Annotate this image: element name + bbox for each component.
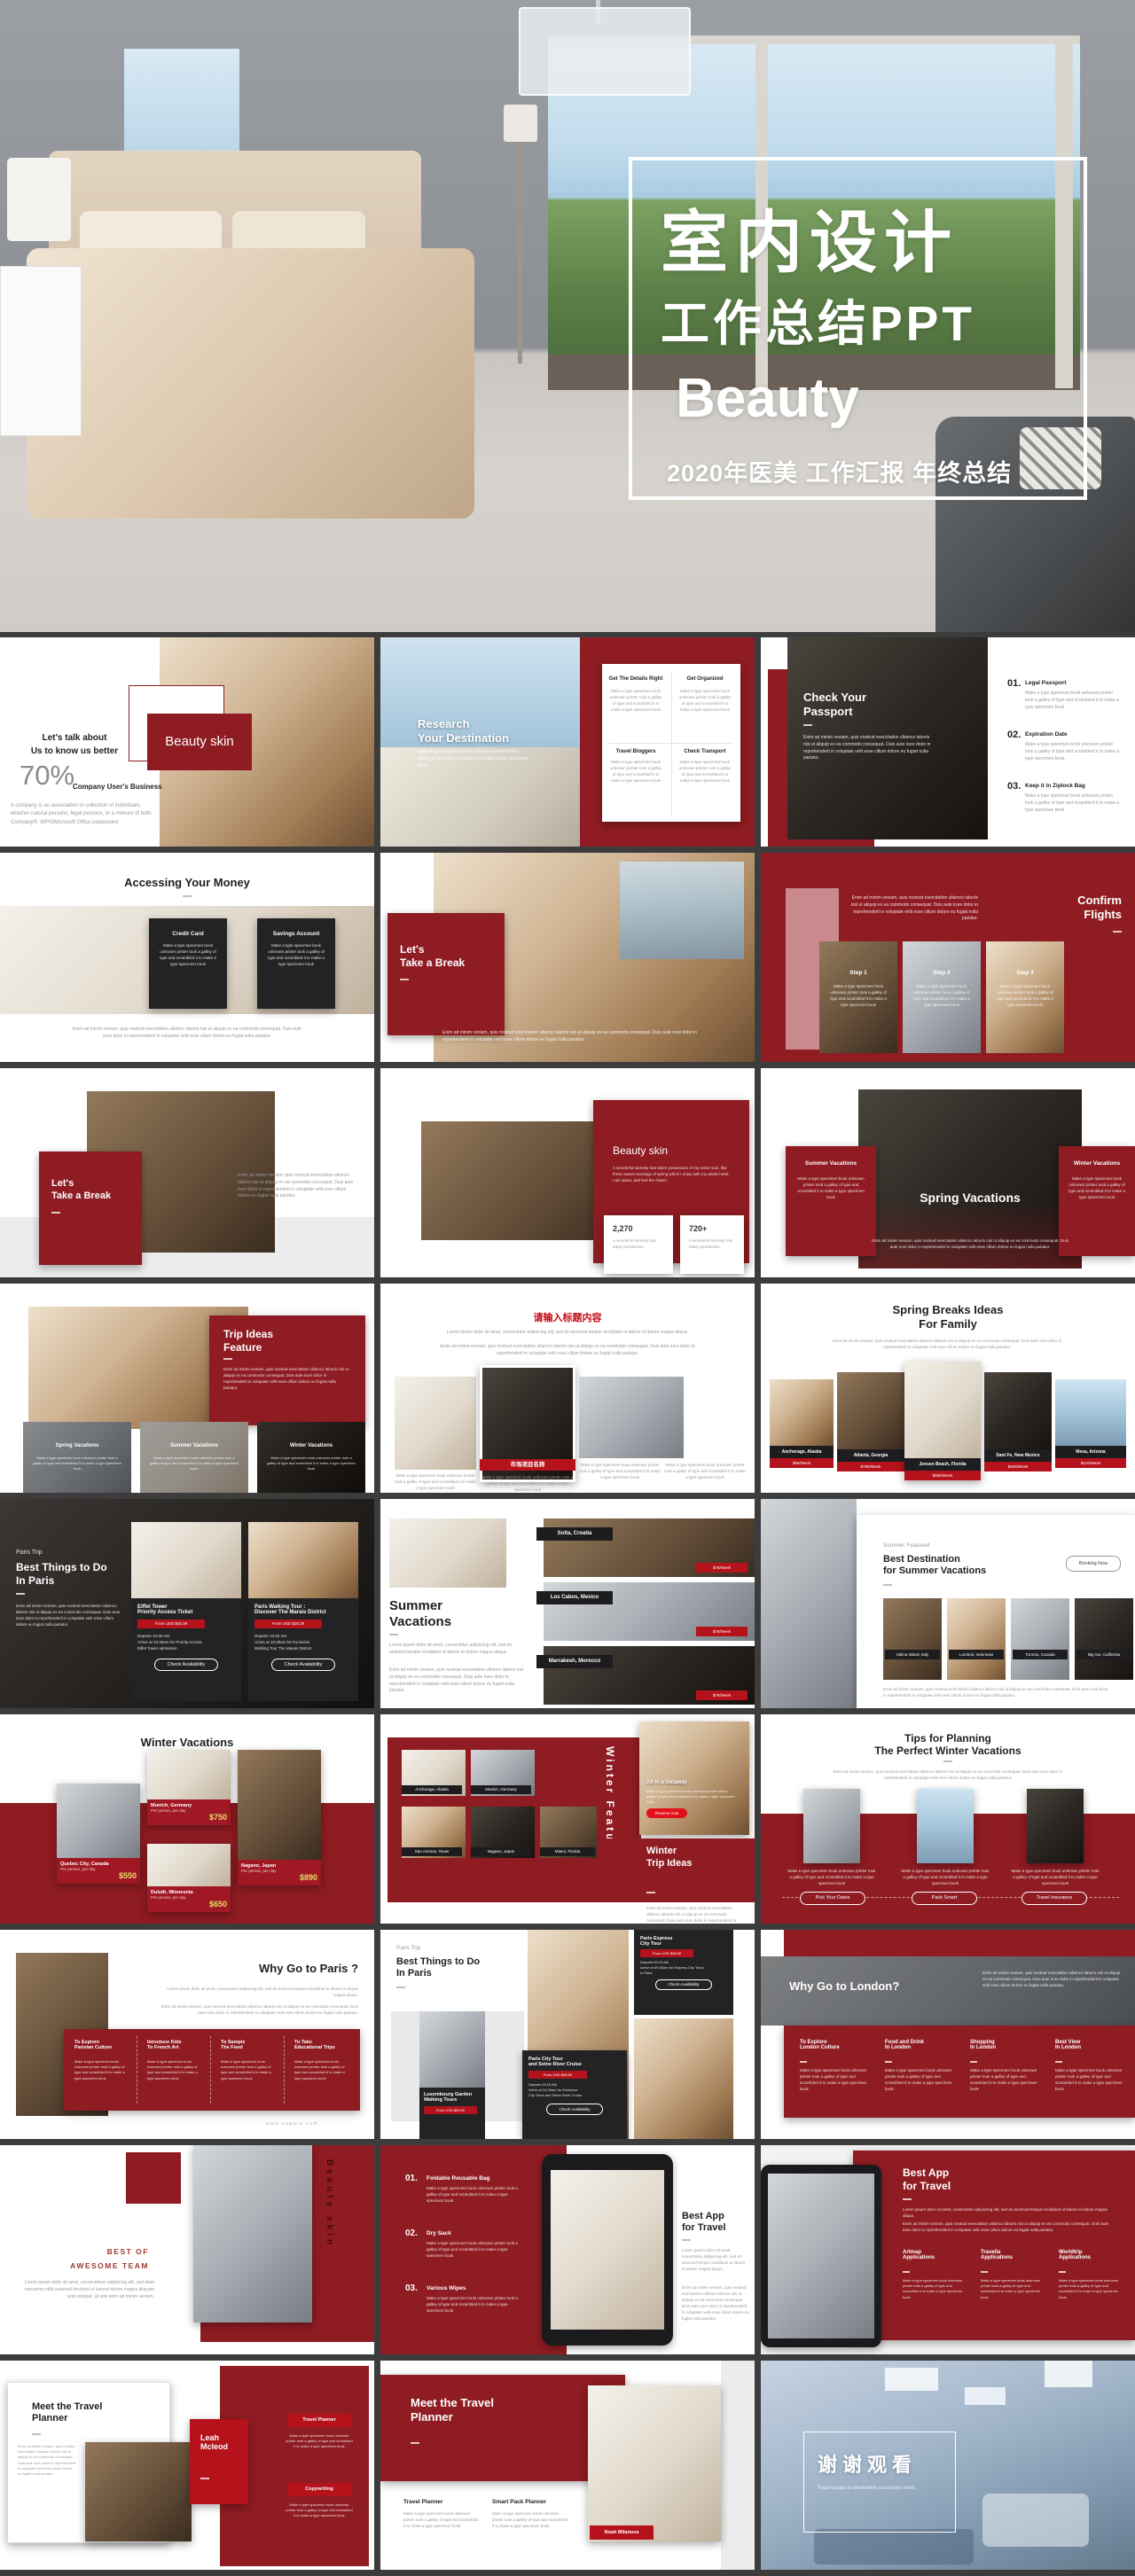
s17-title: Winter Trip Ideas xyxy=(646,1846,692,1870)
s1-stat-label: Company User's Business xyxy=(73,783,162,791)
divider xyxy=(411,2442,419,2444)
s20-card-1-title: Luxembourg Garden Walking Tours xyxy=(424,2092,481,2103)
s17-label-4: Nagano, Japan xyxy=(471,1847,531,1856)
s9-right-body: Make a type specimen book unknown printe… xyxy=(1066,1176,1128,1201)
s9-left-body: Make a type specimen book unknown printe… xyxy=(794,1176,867,1201)
s6-step-2: Step 2 xyxy=(903,970,981,976)
s20-card-1-price: From USD $69.59 xyxy=(424,2106,477,2114)
s21-col-3: Shopping In London xyxy=(970,2040,996,2050)
s21-col-1-body: Make a type specimen book unknown printe… xyxy=(800,2068,867,2093)
travel-insurance-button: Travel Insurance xyxy=(1021,1892,1087,1905)
slide-thumb-17[interactable]: Winter Feature Anchorage, Alaska Munich,… xyxy=(380,1714,755,1924)
s14-price-1: $78/Week xyxy=(696,1563,748,1573)
slide-thumb-1[interactable]: Beauty skin Let's talk about Us to know … xyxy=(0,637,374,847)
s4-title: Accessing Your Money xyxy=(0,876,374,890)
s16-price-3: $650 xyxy=(151,1900,227,1909)
s25-title: Meet the Travel Planner xyxy=(32,2401,102,2424)
fireplace-photo xyxy=(389,1518,506,1588)
s9-left-label: Summer Vacations xyxy=(786,1160,876,1167)
divider xyxy=(970,2061,977,2063)
s18-body: Enim ad minim veniam, quis nostrud exerc… xyxy=(828,1769,1068,1784)
s23-num-2: 02. xyxy=(405,2229,418,2238)
person-card xyxy=(190,2419,248,2504)
tour-card: Eiffel Tower Priority Access TicketFrom … xyxy=(131,1522,241,1701)
s16-price-2: $550 xyxy=(60,1871,137,1880)
hero-title-en: Beauty xyxy=(676,367,859,430)
slide-thumb-20[interactable]: Paris Trip Best Things to Do In Paris Lu… xyxy=(380,1930,755,2139)
tablet-screen-photo xyxy=(551,2170,664,2330)
s26-tag: Noah Milanova xyxy=(590,2525,654,2540)
s17-feature-title: All In a Getaway xyxy=(646,1780,687,1785)
divider xyxy=(396,1987,405,1988)
s15-card-3: Toronto, Canada xyxy=(1013,1650,1068,1659)
s18-text-1: Make a type specimen book unknown printe… xyxy=(787,1869,876,1887)
s14-city-1: Solta, Croatia xyxy=(536,1527,613,1541)
atrium-photo xyxy=(761,1499,857,1708)
s24-col-2: Travelia Applications xyxy=(981,2250,1013,2260)
s21-col-1: To Explore London Culture xyxy=(800,2040,840,2050)
s19-col-3-body: Make a type specimen book unknown printe… xyxy=(221,2059,276,2081)
s12-price-2: $795/Week xyxy=(837,1462,904,1471)
slide-thumb-4[interactable]: Accessing Your Money Credit Card Make a … xyxy=(0,853,374,1062)
tablet-screen-photo xyxy=(768,2174,874,2338)
s8-stat-2: 720+ xyxy=(689,1224,707,1233)
slide-thumb-11[interactable]: 请输入标题内容 Lorem ipsum dolor sit amet, cons… xyxy=(380,1284,755,1493)
s9-right-label: Winter Vacations xyxy=(1059,1160,1135,1167)
s6-step-3: Step 3 xyxy=(986,970,1064,976)
price-card-munich: Munich, GermanyPer person, per day$750 xyxy=(147,1750,231,1825)
s13-card-1-title: Eiffel Tower Priority Access Ticket xyxy=(137,1604,235,1615)
tip-photo-3 xyxy=(1027,1789,1084,1863)
s12-title: Spring Breaks Ideas For Family xyxy=(761,1303,1135,1331)
s21-body: Enim ad minim veniam, quis nostrud exerc… xyxy=(982,1971,1124,1989)
s20-card-3-price: From USD $38.59 xyxy=(640,1949,693,1957)
s23-item-2: Dry Sack xyxy=(427,2230,451,2236)
reserve-now-button: Reserve now xyxy=(646,1808,687,1818)
s26-col-1: Travel Planner xyxy=(403,2499,442,2505)
s18-title: Tips for Planning The Perfect Winter Vac… xyxy=(761,1732,1135,1758)
s9-footer: Enim ad minim veniam, quis nostrud exerc… xyxy=(867,1238,1073,1251)
s19-col-3: To Sample The Food xyxy=(221,2040,245,2050)
s11-col-2: Make a type specimen book unknown printe… xyxy=(480,1475,575,1493)
white-bedroom-photo xyxy=(579,1377,684,1458)
s22-title: BEST OF AWESOME TEAM xyxy=(32,2244,149,2273)
s3-body: Enim ad minim veniam, quis nostrud exerc… xyxy=(803,735,936,762)
s10-card-3-body: Make a type specimen book unknown printe… xyxy=(266,1456,356,1472)
s24-body-1: Lorem ipsum dolor sit amet, consectetur … xyxy=(903,2207,1115,2220)
s14-price-3: $78/Week xyxy=(696,1690,748,1700)
s6-step-1: Step 1 xyxy=(819,970,897,976)
s4-card-2: Savings Account xyxy=(257,931,335,937)
slide-thumb-2[interactable]: Research Your Destination Make a type sp… xyxy=(380,637,755,847)
red-top-bar xyxy=(784,1930,1135,1956)
s23-item-3-body: Make a type specimen book unknown printe… xyxy=(427,2296,526,2314)
s3-item-1-body: Make a type specimen book unknown printe… xyxy=(1025,691,1121,711)
s24-title: Best App for Travel xyxy=(903,2166,951,2193)
s8-stat-1: 2,270 xyxy=(613,1224,633,1233)
city-card: Atlanta, Georgia$795/Week xyxy=(837,1372,904,1471)
s13-card-2-price: From USD $28.39 xyxy=(254,1620,322,1628)
divider xyxy=(943,1760,952,1762)
s12-price-5: $116/Week xyxy=(1055,1458,1126,1468)
s14-body-1: Lorem ipsum dolor sit amet, consectetur … xyxy=(389,1643,524,1657)
dest-photo-4 xyxy=(1075,1598,1133,1680)
s19-col-4-body: Make a type specimen book unknown printe… xyxy=(294,2059,349,2081)
dest-photo-1 xyxy=(883,1598,942,1680)
s2-card-1-body: Make a type specimen book unknown printe… xyxy=(609,689,662,714)
s17-label-2: Munich, Germany xyxy=(471,1785,531,1794)
loft-photo xyxy=(193,2145,312,2322)
s21-col-4-body: Make a type specimen book unknown printe… xyxy=(1055,2068,1123,2093)
s22-body: Lorem ipsum dolor sit amet, consectetuer… xyxy=(21,2280,154,2300)
s5-footer: Enim ad minim veniam, quis nostrud exerc… xyxy=(442,1030,700,1044)
slide-thumb-26[interactable]: Meet the Travel Planner Travel Planner M… xyxy=(380,2361,755,2570)
slide-thumb-14[interactable]: Summer Vacations Lorem ipsum dolor sit a… xyxy=(380,1499,755,1708)
s25-body: Enim ad minim veniam, quis nostrud exerc… xyxy=(18,2444,76,2477)
s6-step-1-body: Make a type specimen book unknown printe… xyxy=(826,984,890,1009)
slide-thumb-22[interactable]: Beauty skin BEST OF AWESOME TEAM Lorem i… xyxy=(0,2145,374,2354)
s24-col-1: Artmap Applications xyxy=(903,2250,935,2260)
slide-thumb-9[interactable]: Spring Vacations Summer Vacations Make a… xyxy=(761,1068,1135,1277)
slide-thumb-8[interactable]: Beauty skin A wonderful serenity has tak… xyxy=(380,1068,755,1277)
s3-item-3: Keep it in Ziplock Bag xyxy=(1025,783,1085,789)
divider xyxy=(1059,2271,1066,2273)
slide-thumb-15[interactable]: Summer Featured Best Destination for Sum… xyxy=(761,1499,1135,1708)
price-card-nagano: Nagano, JapanPer person, per day$890 xyxy=(238,1750,321,1885)
s17-label-5: Miami, Florida xyxy=(540,1847,595,1856)
s23-num-3: 03. xyxy=(405,2283,418,2293)
pick-dates-button: Pick Your Dates xyxy=(800,1892,865,1905)
pack-smart-button: Pack Smart xyxy=(912,1892,977,1905)
hero-cover: 室内设计 工作总结PPT Beauty 2020年医美 工作汇报 年终总结 xyxy=(0,0,1135,632)
s26-col-2-body: Make a type specimen book unknown printe… xyxy=(492,2511,570,2530)
tip-photo-1 xyxy=(803,1789,860,1863)
s2-card-1: Get The Details Right xyxy=(607,676,664,682)
s10-card-1-body: Make a type specimen book unknown printe… xyxy=(32,1456,122,1472)
s19-col-4: To Take Educational Trips xyxy=(294,2040,335,2050)
s24-col-1-body: Make a type specimen book unknown printe… xyxy=(903,2278,967,2300)
check-availability-button: Check Availability xyxy=(655,1979,712,1990)
s2-caption: Make a type specimen book unknown printe… xyxy=(418,749,531,769)
s13-title: Best Things to Do In Paris xyxy=(16,1561,107,1588)
s23-item-3: Various Wipes xyxy=(427,2285,466,2291)
s3-title: Check Your Passport xyxy=(803,691,866,720)
city-card: Jensen Beach, Florida$856/Week xyxy=(904,1362,981,1480)
s25-badge-1-body: Make a type specimen book unknown printe… xyxy=(286,2433,353,2450)
slide-thumb-3[interactable]: Check Your Passport Enim ad minim veniam… xyxy=(761,637,1135,847)
s2-card-2-body: Make a type specimen book unknown printe… xyxy=(678,689,732,714)
check-availability-button: Check Availability xyxy=(271,1659,335,1671)
s2-title: Research Your Destination xyxy=(418,717,509,746)
s8-stat-1-label: A wonderful serenity has taken possessio… xyxy=(613,1238,664,1251)
s19-col-2-body: Make a type specimen book unknown printe… xyxy=(147,2059,202,2081)
red-panel xyxy=(853,2151,1135,2340)
slide-thumb-10[interactable]: Trip Ideas Feature Enim ad minim veniam,… xyxy=(0,1284,374,1493)
s20-card-2-details: Departs 09:15 AM Arrive at 09:30am for E… xyxy=(528,2082,621,2099)
s19-col-1-body: Make a type specimen book unknown printe… xyxy=(74,2059,129,2081)
s23-num-1: 01. xyxy=(405,2174,418,2183)
s1-stat: 70% xyxy=(20,760,74,792)
s6-step-3-body: Make a type specimen book unknown printe… xyxy=(993,984,1057,1009)
s10-card-2-body: Make a type specimen book unknown printe… xyxy=(149,1456,239,1472)
s13-kicker: Paris Trip xyxy=(16,1549,43,1558)
s20-card-3-details: Departs 09:15 AM Arrive at 09:30am for E… xyxy=(640,1960,727,1977)
copywriting-badge: Copywriting xyxy=(287,2483,351,2496)
s14-price-2: $78/Week xyxy=(696,1627,748,1636)
slide-thumb-5[interactable]: Let's Take a Break Enim ad minim veniam,… xyxy=(380,853,755,1062)
luxembourg-photo xyxy=(419,2011,485,2088)
s15-card-2: Lombok, Indonesia xyxy=(949,1650,1004,1659)
s15-card-1: Salina Island, Italy xyxy=(885,1650,940,1659)
sofa-photo xyxy=(634,2018,733,2139)
s17-footer-body: Enim ad minim veniam, quis nostrud exerc… xyxy=(646,1906,746,1922)
s15-footer: Enim ad minim veniam, quis nostrud exerc… xyxy=(883,1687,1110,1703)
red-title-box xyxy=(387,913,505,1035)
s9-title: Spring Vacations xyxy=(858,1190,1082,1206)
divider xyxy=(1113,931,1122,933)
s13-card-1-price: From USD $48.39 xyxy=(137,1620,205,1628)
city-card: Sant Fe, New Mexico$805/Week xyxy=(984,1372,1052,1471)
s23-item-1-body: Make a type specimen book unknown printe… xyxy=(427,2186,526,2205)
s11-tag: 市场项目名称 xyxy=(480,1459,575,1471)
s23-body-1: Lorem ipsum dolor sit amet, consectetur … xyxy=(682,2248,749,2273)
s2-card-3: Travel Bloggers xyxy=(607,749,664,754)
dest-photo-3 xyxy=(1011,1598,1069,1680)
s7-title: Let's Take a Break xyxy=(51,1178,111,1203)
s23-title: Best App for Travel xyxy=(682,2211,726,2234)
slide-thumb-13[interactable]: Paris Trip Best Things to Do In Paris En… xyxy=(0,1499,374,1708)
s16-price-4: $890 xyxy=(241,1873,317,1882)
s18-text-3: Make a type specimen book unknown printe… xyxy=(1011,1869,1100,1887)
price-card-quebec: Quebec City, CanadaPer person, per day$5… xyxy=(57,1784,140,1884)
s11-col-1: Make a type specimen book unknown printe… xyxy=(395,1473,476,1492)
divider xyxy=(885,2061,892,2063)
s12-body: Enim ad minim veniam, quis nostrud exerc… xyxy=(823,1339,1071,1351)
s4-card-1-body: Make a type specimen book unknown printe… xyxy=(156,943,220,968)
tip-photo-2 xyxy=(917,1789,974,1863)
s27-title: 谢谢观看 xyxy=(818,2449,917,2478)
s12-price-3: $856/Week xyxy=(904,1471,981,1480)
price-card-duluth: Duluth, MinnesotaPer person, per day$650 xyxy=(147,1844,231,1912)
window-photo xyxy=(620,862,744,959)
red-deco-block xyxy=(126,2152,181,2204)
s25-badge-2-body: Make a type specimen book unknown printe… xyxy=(286,2502,353,2519)
s20-kicker: Paris Trip xyxy=(396,1944,420,1953)
s12-price-4: $805/Week xyxy=(984,1462,1052,1471)
s3-num-1: 01. xyxy=(1007,678,1021,689)
s12-city-4: Sant Fe, New Mexico xyxy=(984,1449,1052,1462)
travel-planner-badge: Travel Planner xyxy=(287,2414,351,2427)
s24-col-3-body: Make a type specimen book unknown printe… xyxy=(1059,2278,1123,2300)
s2-card-4-body: Make a type specimen book unknown printe… xyxy=(678,760,732,785)
lobby-photo xyxy=(85,2442,192,2541)
s8-stat-2-label: A wonderful serenity has taken possessio… xyxy=(689,1238,737,1251)
s13-card-2-title: Paris Walking Tour : Discover The Marais… xyxy=(254,1604,352,1615)
s1-intro: Let's talk about Us to know us better xyxy=(5,731,144,758)
divider xyxy=(903,2198,912,2200)
s15-title: Best Destination for Summer Vacations xyxy=(883,1554,986,1577)
s2-card-4: Check Transport xyxy=(677,749,733,754)
s21-col-3-body: Make a type specimen book unknown printe… xyxy=(970,2068,1037,2093)
s12-city-1: Anchorage, Alaska xyxy=(770,1446,834,1458)
s19-body-2: Enim ad minim veniam, quis nostrud exerc… xyxy=(160,2004,358,2022)
s21-col-2-body: Make a type specimen book unknown printe… xyxy=(885,2068,952,2093)
red-title-box xyxy=(39,1151,142,1265)
s10-card-2: Summer Vacations xyxy=(140,1443,248,1448)
divider xyxy=(200,2478,209,2479)
white-room-photo xyxy=(588,2385,721,2541)
s16-price-1: $750 xyxy=(151,1813,227,1822)
s17-label-3: San Antonio, Texas xyxy=(402,1847,462,1856)
hero-title-cn2: 工作总结PPT xyxy=(661,284,975,355)
slide-thumb-25[interactable]: Meet the Travel Planner Enim ad minim ve… xyxy=(0,2361,374,2570)
s10-title: Trip Ideas Feature xyxy=(223,1328,273,1354)
s21-title: Why Go to London? xyxy=(789,1979,899,1994)
s7-body: Enim ad minim veniam, quis nostrud exerc… xyxy=(238,1173,355,1200)
seine-card: Paris City Tour and Seine River CruiseFr… xyxy=(522,2050,627,2139)
s21-col-2: Food and Drink In London xyxy=(885,2040,924,2050)
s15-kicker: Summer Featured xyxy=(883,1542,929,1550)
s3-num-3: 03. xyxy=(1007,781,1021,792)
s14-body-2: Enim ad minim veniam, quis nostrud exerc… xyxy=(389,1667,524,1703)
divider xyxy=(800,2061,807,2063)
s24-col-3: Worldtrip Applications xyxy=(1059,2250,1091,2260)
s6-step-2-body: Make a type specimen book unknown printe… xyxy=(910,984,974,1009)
slide-thumb-21[interactable]: Why Go to London? Enim ad minim veniam, … xyxy=(761,1930,1135,2139)
s23-item-1: Foldable Reusable Bag xyxy=(427,2175,490,2182)
s23-item-2-body: Make a type specimen book unknown printe… xyxy=(427,2241,526,2260)
s11-col-4: Make a type specimen book unknown printe… xyxy=(664,1463,746,1481)
s1-body: A company is an association or collectio… xyxy=(11,802,157,827)
s20-card-2-price: From USD $36.59 xyxy=(528,2071,587,2079)
slide-thumb-24[interactable]: Best App for Travel Lorem ipsum dolor si… xyxy=(761,2145,1135,2354)
s2-card-2: Get Organized xyxy=(677,676,733,682)
s26-col-2: Smart Pack Planner xyxy=(492,2499,546,2505)
tour-card: Paris Walking Tour : Discover The Marais… xyxy=(248,1522,358,1701)
divider xyxy=(16,1593,25,1595)
s18-text-2: Make a type specimen book unknown printe… xyxy=(901,1869,990,1887)
s19-title: Why Go to Paris ? xyxy=(160,1962,358,1976)
divider xyxy=(803,724,812,726)
s19-body-1: Lorem ipsum dolor sit amet, consectetur … xyxy=(160,1987,358,1999)
booking-now-button: Booking Now xyxy=(1066,1556,1121,1572)
divider xyxy=(32,2433,41,2435)
divider xyxy=(981,2271,988,2273)
s14-city-2: Los Cabos, Mexico xyxy=(536,1591,613,1604)
title-frame xyxy=(803,2432,956,2533)
s8-title: Beauty skin xyxy=(613,1144,668,1158)
slide-thumb-12[interactable]: Spring Breaks Ideas For Family Enim ad m… xyxy=(761,1284,1135,1493)
s1-badge: Beauty skin xyxy=(147,714,252,770)
s19-col-1: To Explore Parisian Culture xyxy=(74,2040,112,2050)
grey-strip xyxy=(721,2361,755,2570)
s22-vertical-text: Beauty skin xyxy=(325,2159,334,2337)
s12-city-3: Jensen Beach, Florida xyxy=(904,1458,981,1471)
s12-price-1: $96/Week xyxy=(770,1458,834,1468)
s26-col-1-body: Make a type specimen book unknown printe… xyxy=(403,2511,481,2530)
s13-card-2-details: Departs 10:45 AM Arrive at 10:30am for E… xyxy=(254,1634,352,1652)
divider xyxy=(223,1358,232,1360)
divider xyxy=(51,1212,60,1214)
s16-title: Winter Vacations xyxy=(0,1736,374,1750)
divider xyxy=(682,2239,691,2241)
s13-card-1-details: Departs 10:45 AM Arrive at 10:30am for P… xyxy=(137,1634,235,1652)
divider xyxy=(1055,2061,1062,2063)
s4-card-2-body: Make a type specimen book unknown printe… xyxy=(264,943,328,968)
s20-card-3-title: Paris Express City Tour xyxy=(640,1936,727,1947)
s13-body: Enim ad minim veniam, quis nostrud exerc… xyxy=(16,1604,121,1628)
city-card: Mesa, Arizona$116/Week xyxy=(1055,1379,1126,1468)
s12-city-5: Mesa, Arizona xyxy=(1055,1446,1126,1458)
s5-title: Let's Take a Break xyxy=(400,943,465,970)
s27-subtitle: Travel guides to destination around the … xyxy=(818,2485,946,2493)
s12-city-2: Atlanta, Georgia xyxy=(837,1449,904,1462)
s20-title: Best Things to Do In Paris xyxy=(396,1956,480,1979)
s11-col-3: Make a type specimen book unknown printe… xyxy=(579,1463,661,1481)
s6-title: Confirm Flights xyxy=(1022,894,1122,923)
s15-card-4: Big Sur, California xyxy=(1076,1650,1131,1659)
slide-thumb-19[interactable]: Why Go to Paris ? Lorem ipsum dolor sit … xyxy=(0,1930,374,2139)
s10-body: Enim ad minim veniam, quis nostrud exerc… xyxy=(223,1367,351,1392)
slide-thumb-18[interactable]: Tips for Planning The Perfect Winter Vac… xyxy=(761,1714,1135,1924)
s24-col-2-body: Make a type specimen book unknown printe… xyxy=(981,2278,1045,2300)
s11-body: Lorem ipsum dolor sit amet, consectetur … xyxy=(439,1330,696,1337)
check-availability-button: Check Availability xyxy=(154,1659,218,1671)
s20-card-2-title: Paris City Tour and Seine River Cruise xyxy=(528,2057,621,2067)
s3-item-2-body: Make a type specimen book unknown printe… xyxy=(1025,742,1121,762)
slide-thumb-23[interactable]: 01. Foldable Reusable Bag Make a type sp… xyxy=(380,2145,755,2354)
s24-body-2: Enim ad minim veniam, quis nostrud exerc… xyxy=(903,2221,1115,2236)
s11-title: 请输入标题内容 xyxy=(380,1310,755,1324)
s2-card-3-body: Make a type specimen book unknown printe… xyxy=(609,760,662,785)
luxembourg-card: Luxembourg Garden Walking ToursFrom USD … xyxy=(419,2088,485,2139)
slide-thumb-16[interactable]: Winter Vacations Quebec City, CanadaPer … xyxy=(0,1714,374,1924)
s4-footer: Enim ad minim veniam, quis nostrud exerc… xyxy=(71,1026,303,1041)
s19-url: www.sugara.com xyxy=(266,2121,318,2127)
express-card: Paris Express City TourFrom USD $38.59De… xyxy=(634,1930,733,2015)
feature-card xyxy=(602,664,740,822)
s4-card-1: Credit Card xyxy=(149,931,227,937)
s10-card-3: Winter Vacations xyxy=(257,1443,365,1448)
divider xyxy=(883,1584,892,1586)
slide-thumb-7[interactable]: Let's Take a Break Enim ad minim veniam,… xyxy=(0,1068,374,1277)
s25-person-name: Leah Mcleod xyxy=(200,2433,228,2451)
divider xyxy=(903,2271,910,2273)
city-card: Anchorage, Alaska$96/Week xyxy=(770,1379,834,1468)
s14-city-3: Marrakesh, Morocco xyxy=(536,1655,613,1668)
hero-subtitle: 2020年医美 工作汇报 年终总结 xyxy=(667,454,1012,488)
s3-item-3-body: Make a type specimen book unknown printe… xyxy=(1025,793,1121,814)
divider xyxy=(400,979,409,980)
s17-label-1: Anchorage, Alaska xyxy=(402,1785,462,1794)
hero-title-cn: 室内设计 xyxy=(661,188,959,285)
slide-thumb-6[interactable]: Enim ad minim veniam, quis nostrud exerc… xyxy=(761,853,1135,1062)
s10-card-1: Spring Vacations xyxy=(23,1443,131,1448)
check-availability-button: Check Availability xyxy=(546,2104,603,2115)
s11-body-2: Enim ad minim veniam, quis nostrud exerc… xyxy=(439,1344,696,1362)
slide-thumb-27[interactable]: 谢谢观看 Travel guides to destination around… xyxy=(761,2361,1135,2570)
s3-item-1: Legal Passport xyxy=(1025,680,1067,686)
s3-item-2: Expiration Date xyxy=(1025,731,1068,738)
s26-title: Meet the Travel Planner xyxy=(411,2396,494,2425)
slide-thumbnail-grid: Beauty skin Let's talk about Us to know … xyxy=(0,632,1135,2576)
s3-num-2: 02. xyxy=(1007,730,1021,740)
s14-title: Summer Vacations xyxy=(389,1598,451,1630)
s21-col-4: Best View In London xyxy=(1055,2040,1081,2050)
s17-feature-body: Make a type specimen book unknown printe… xyxy=(646,1789,735,1806)
bedroom-photo xyxy=(395,1377,476,1470)
dest-photo-2 xyxy=(947,1598,1006,1680)
